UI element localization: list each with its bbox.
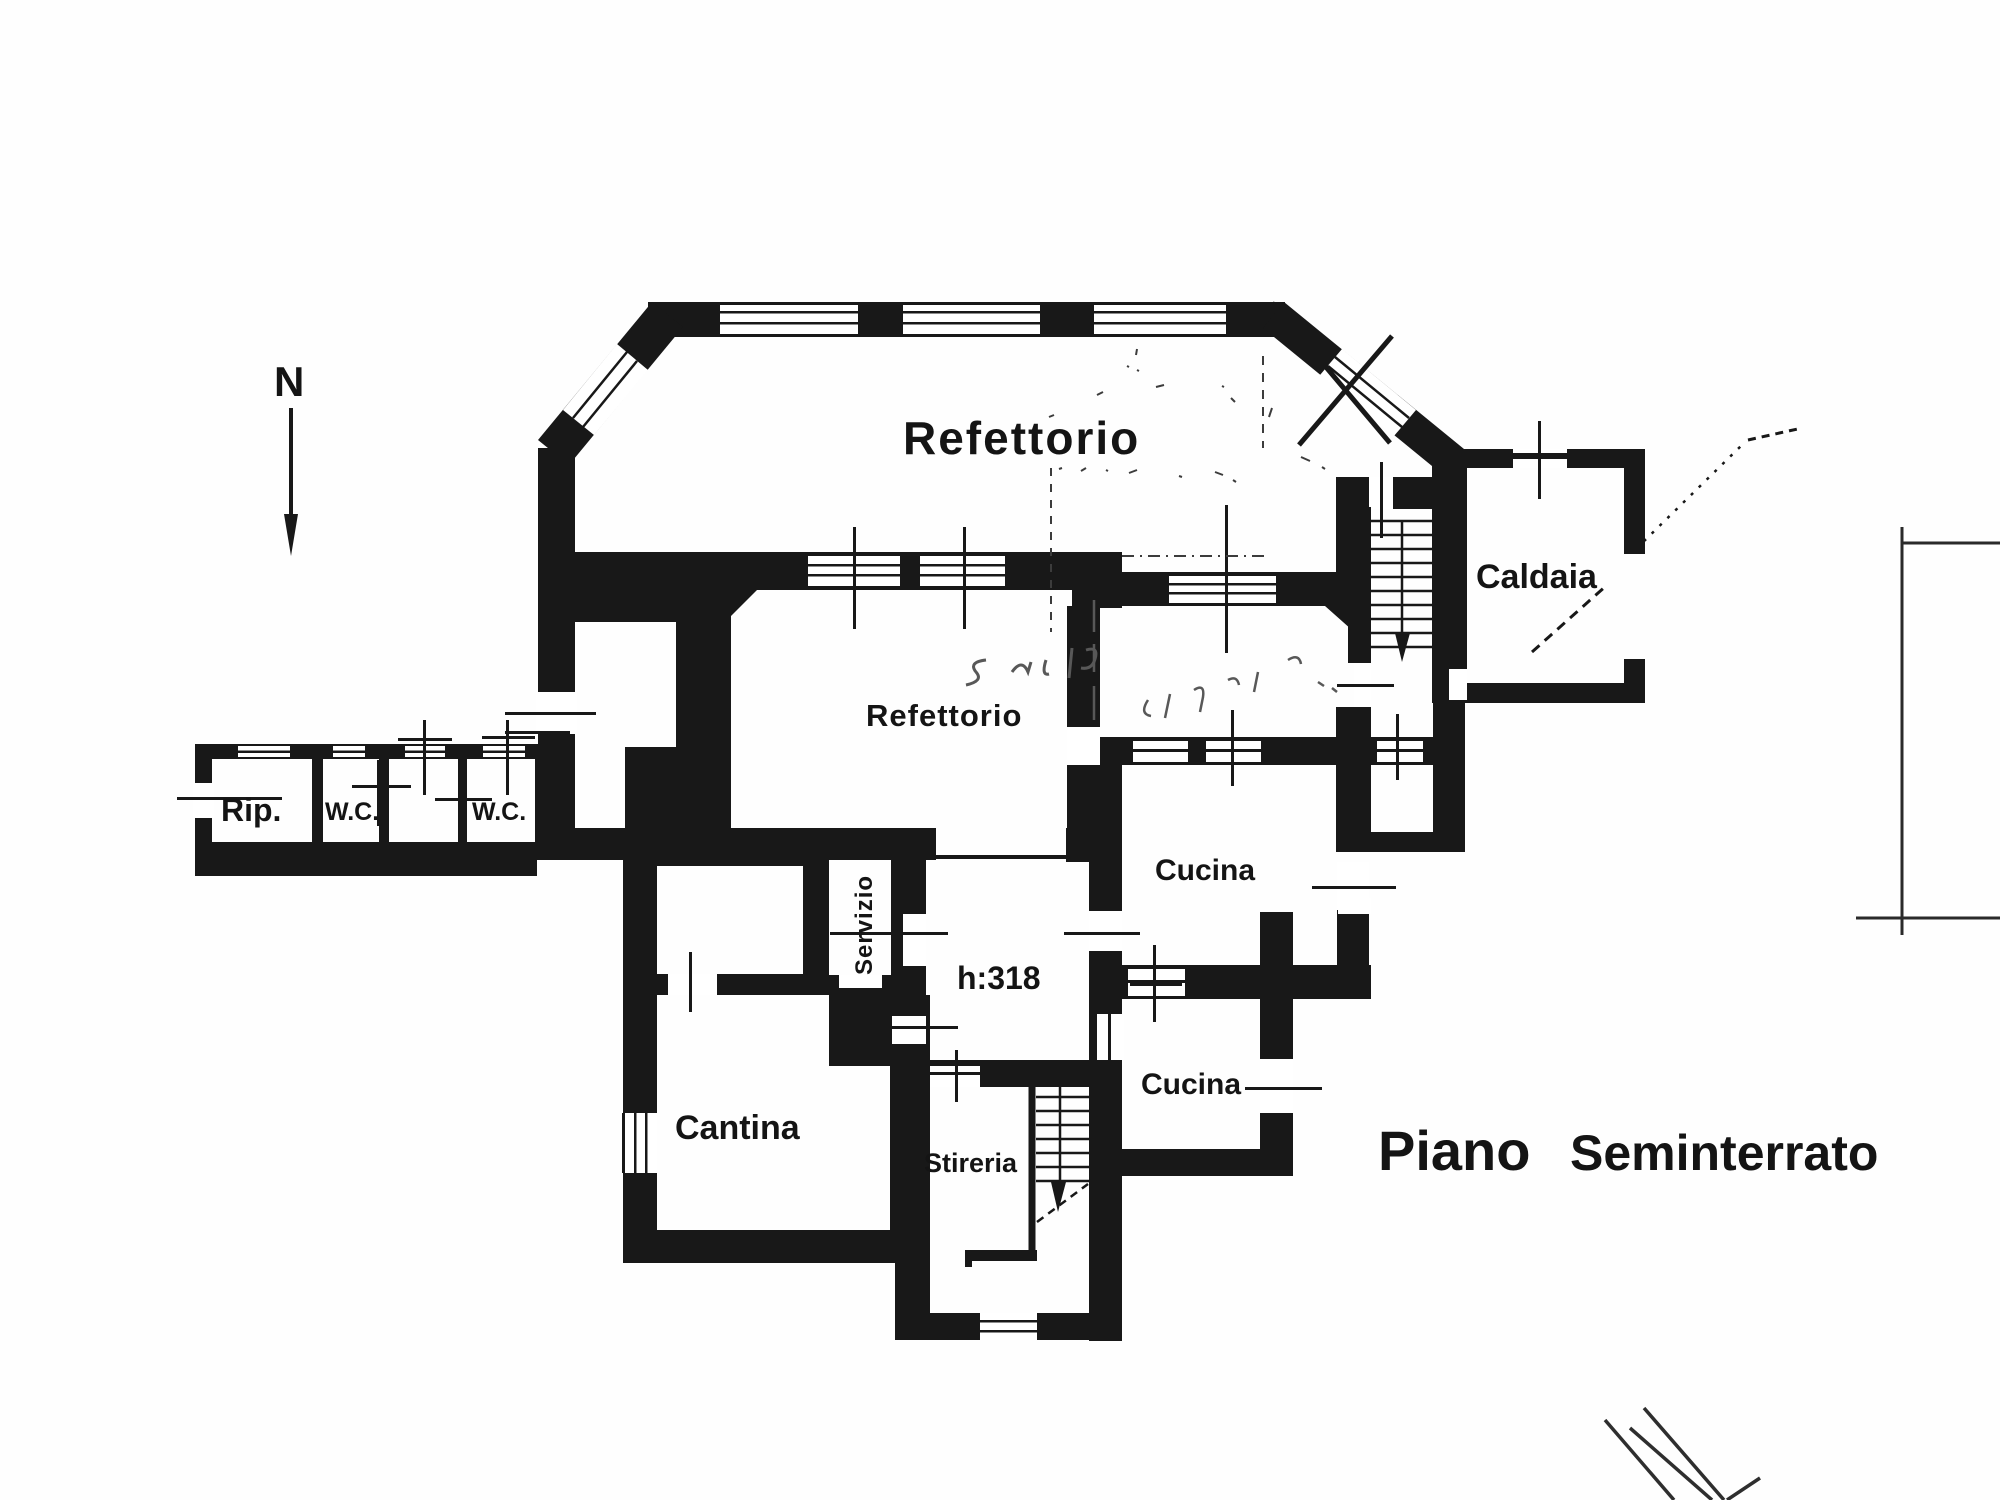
svg-text:W.C.: W.C.	[472, 798, 526, 826]
svg-text:Rip.: Rip.	[221, 792, 281, 828]
svg-text:Servizio: Servizio	[851, 875, 878, 975]
svg-text:W.C.: W.C.	[325, 798, 379, 826]
svg-text:Cantina: Cantina	[675, 1109, 801, 1147]
svg-text:Stireria: Stireria	[924, 1148, 1018, 1178]
svg-text:Cucina: Cucina	[1141, 1068, 1241, 1101]
svg-text:Piano: Piano	[1378, 1119, 1530, 1182]
svg-text:Cucina: Cucina	[1155, 854, 1255, 887]
svg-text:Seminterrato: Seminterrato	[1570, 1125, 1878, 1181]
svg-text:h:318: h:318	[957, 960, 1041, 996]
svg-text:N: N	[274, 358, 305, 405]
svg-text:Refettorio: Refettorio	[903, 412, 1140, 464]
svg-text:Caldaia: Caldaia	[1476, 558, 1598, 596]
svg-text:Refettorio: Refettorio	[866, 698, 1022, 733]
